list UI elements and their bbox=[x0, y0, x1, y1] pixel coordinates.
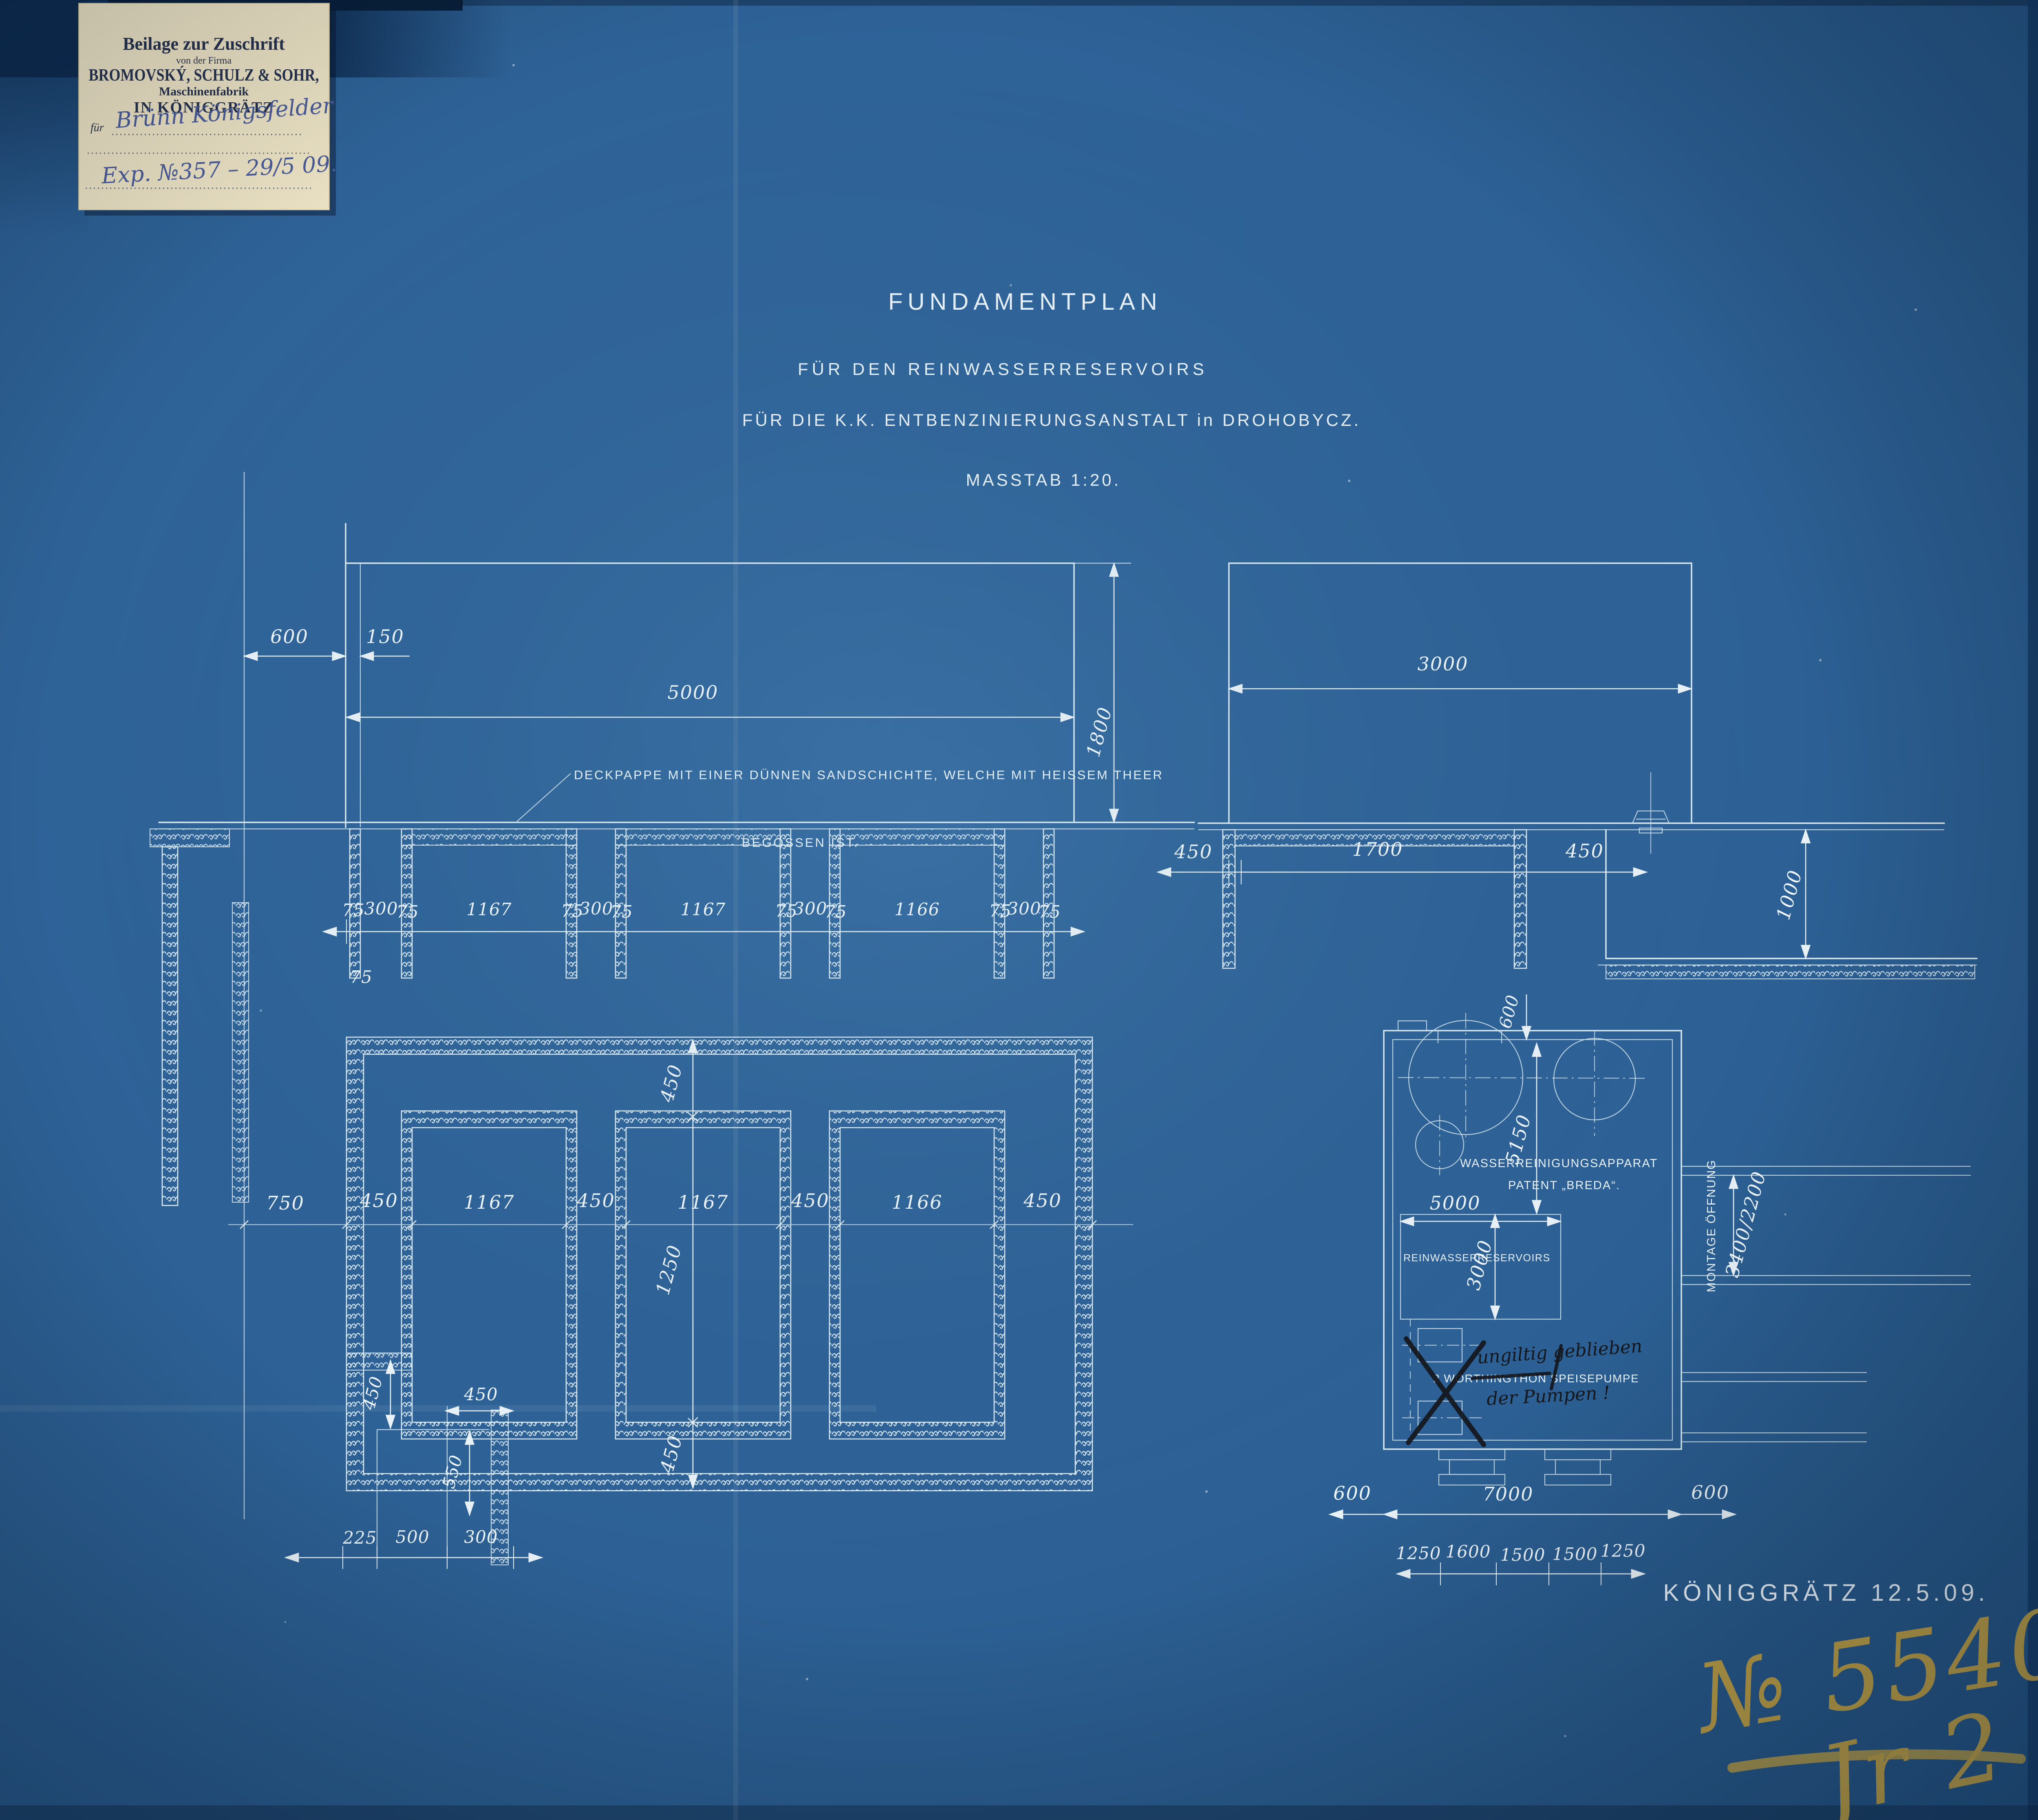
dim-150: 150 bbox=[366, 626, 404, 648]
chain-label: 300 bbox=[1007, 899, 1041, 919]
bottom-chain-dim: 1250 bbox=[1396, 1543, 1441, 1563]
card-line3: BROMOVSKÝ, SCHULZ & SOHR, bbox=[89, 66, 319, 85]
chain-label: 1700 bbox=[1352, 838, 1403, 860]
blueprint-scan: FUNDAMENTPLAN FÜR DEN REINWASSERRESERVOI… bbox=[0, 0, 2038, 1820]
bottom-chain-dim: 1500 bbox=[1553, 1544, 1598, 1564]
chain-label: 300 bbox=[579, 899, 613, 919]
chain-label: 75 bbox=[824, 902, 847, 922]
plan-dim: 1167 bbox=[463, 1191, 514, 1213]
dim-600: 600 bbox=[270, 626, 309, 648]
dim-5000: 5000 bbox=[667, 681, 718, 703]
dim-5000-plan: 5000 bbox=[1429, 1192, 1480, 1214]
card-line2: von der Firma bbox=[176, 55, 232, 66]
bottom-chain-dim: 1250 bbox=[1601, 1541, 1646, 1561]
plan-dim: 450 bbox=[360, 1190, 398, 1212]
chain-label: 450 bbox=[1565, 840, 1604, 862]
dim-600-right: 600 bbox=[1691, 1481, 1729, 1503]
dim-7000: 7000 bbox=[1482, 1483, 1533, 1505]
plan-dim: 1166 bbox=[891, 1191, 942, 1213]
sump-dim: 500 bbox=[395, 1527, 429, 1547]
plan-dim: 450 bbox=[1023, 1190, 1062, 1212]
card-line4: Maschinenfabrik bbox=[159, 85, 249, 98]
drawing-title: FUNDAMENTPLAN bbox=[888, 289, 1162, 315]
plan-dim: 1167 bbox=[677, 1191, 728, 1213]
chain-label: 75 bbox=[342, 900, 364, 920]
bottom-chain-dim: 1600 bbox=[1446, 1542, 1491, 1562]
fold-crease-vertical bbox=[733, 0, 738, 1820]
chain-label: 300 bbox=[793, 899, 827, 919]
blueprint-drawing: FUNDAMENTPLAN FÜR DEN REINWASSERRESERVOI… bbox=[0, 0, 2038, 1820]
dim-3000: 3000 bbox=[1417, 653, 1468, 675]
label-apparat-1: WASSERREINIGUNGSAPPARAT bbox=[1460, 1157, 1658, 1170]
sump-dim: 225 bbox=[342, 1528, 377, 1548]
chain-label: 450 bbox=[1174, 841, 1213, 863]
plan-dim: 750 bbox=[266, 1192, 304, 1214]
drawing-subtitle-1: FÜR DEN REINWASSERRESERVOIRS bbox=[798, 359, 1208, 379]
chain-label: 1167 bbox=[681, 899, 726, 919]
drawing-subtitle-2: FÜR DIE K.K. ENTBENZINIERUNGSANSTALT in … bbox=[742, 410, 1361, 430]
card-fuer: für bbox=[90, 121, 104, 134]
drawing-scale: MASSTAB 1:20. bbox=[966, 470, 1121, 489]
dim-600-left: 600 bbox=[1333, 1482, 1372, 1504]
chain-label: 1166 bbox=[895, 899, 940, 919]
place-date: KÖNIGGRÄTZ 12.5.09. bbox=[1663, 1580, 1989, 1606]
chain-label-extra: 75 bbox=[350, 967, 372, 987]
plan-dim: 450 bbox=[791, 1190, 829, 1212]
bottom-chain-dim: 1500 bbox=[1500, 1545, 1546, 1565]
plan-dim: 450 bbox=[576, 1190, 615, 1212]
chain-label: 1167 bbox=[467, 899, 512, 919]
fold-crease-horizontal bbox=[0, 1405, 876, 1412]
label-apparat-2: PATENT „BREDA“. bbox=[1508, 1179, 1620, 1192]
sump-dim: 300 bbox=[464, 1527, 498, 1547]
card-line1: Beilage zur Zuschrift bbox=[123, 34, 285, 54]
right-edge-shadow bbox=[2028, 0, 2038, 1820]
chain-label: 75 bbox=[396, 902, 419, 922]
note-deckpappe-line1: DECKPAPPE MIT EINER DÜNNEN SANDSCHICHTE,… bbox=[574, 768, 1163, 782]
sump-dim: 450 bbox=[463, 1384, 498, 1404]
chain-label: 300 bbox=[364, 899, 398, 919]
chain-label: 75 bbox=[1038, 902, 1061, 922]
chain-label: 75 bbox=[610, 902, 633, 922]
montage-label: MONTAGE ÖFFNUNG bbox=[1705, 1159, 1718, 1292]
label-card: Beilage zur Zuschrift von der Firma BROM… bbox=[79, 3, 337, 216]
